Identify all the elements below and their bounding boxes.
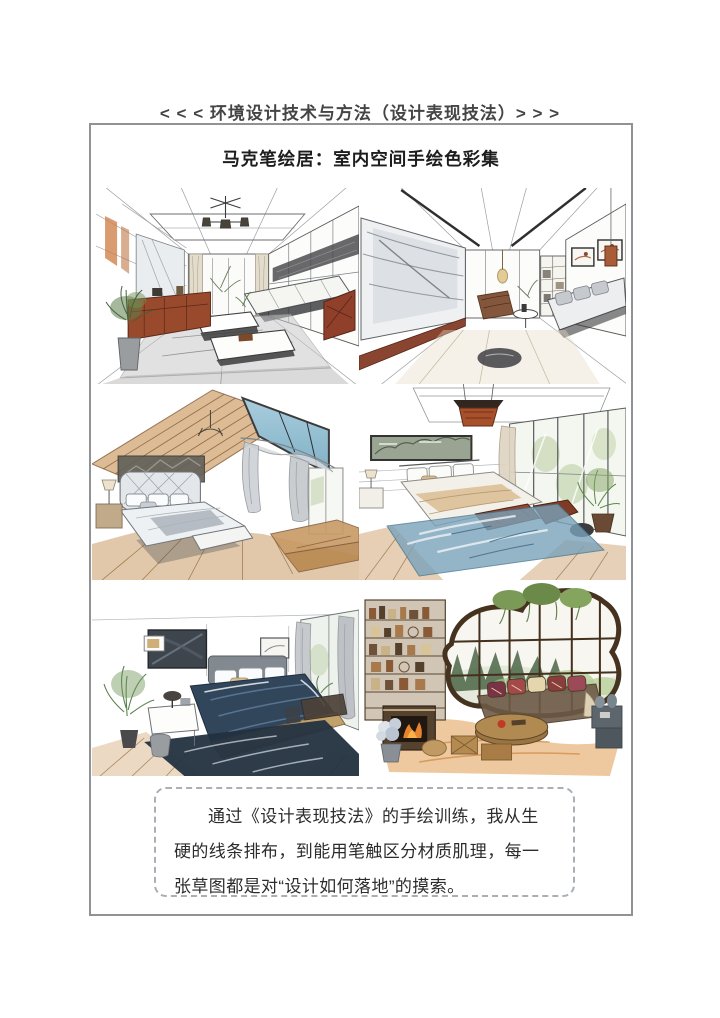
page-title: 马克笔绘居：室内空间手绘色彩集 <box>91 146 631 171</box>
bedroom-navy-drawing <box>92 580 359 776</box>
living-room-one-point-drawing <box>92 188 359 384</box>
sketch-bedroom-navy <box>92 580 359 776</box>
caption-box: 通过《设计表现技法》的手绘训练，我从生硬的线条排布，到能用笔触区分材质肌理，每一… <box>154 787 575 897</box>
document-page: < < < 环境设计技术与方法（设计表现技法）> > > 马克笔绘居：室内空间手… <box>0 0 720 1018</box>
sketch-bedroom-blue-rug <box>359 384 626 580</box>
living-room-tv-wall-drawing <box>359 188 626 384</box>
sunroom-drawing <box>359 580 626 776</box>
sketch-attic-bedroom <box>92 384 359 580</box>
caption-text: 通过《设计表现技法》的手绘训练，我从生硬的线条排布，到能用笔触区分材质肌理，每一… <box>174 799 555 904</box>
bedroom-blue-rug-drawing <box>359 384 626 580</box>
sketch-living-room-tv-wall <box>359 188 626 384</box>
sketch-gallery <box>92 188 626 776</box>
sketch-living-room-one-point <box>92 188 359 384</box>
attic-bedroom-drawing <box>92 384 359 580</box>
sketch-sunroom <box>359 580 626 776</box>
page-header: < < < 环境设计技术与方法（设计表现技法）> > > <box>0 99 720 124</box>
content-frame: 马克笔绘居：室内空间手绘色彩集 <box>89 123 633 916</box>
